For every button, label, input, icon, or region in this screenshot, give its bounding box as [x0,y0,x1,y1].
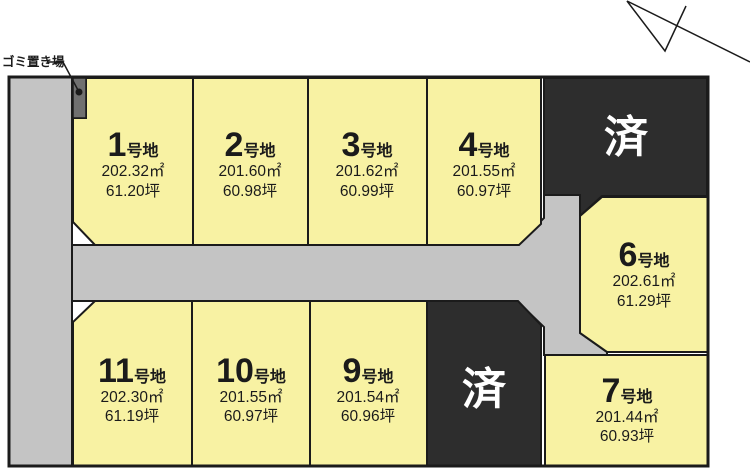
sold-plot-bottom-label: 済 [462,365,507,414]
left-road [9,77,72,466]
plot-3-area-m2: 201.62㎡ [336,162,399,180]
sold-plot-top: 済 [544,78,707,216]
plot-3-area-tsubo: 60.99坪 [340,182,394,200]
plot-4-area-tsubo: 60.97坪 [457,182,511,200]
plot-7: 7号地 201.44㎡ 60.93坪 [545,355,708,466]
plot-7-area-m2: 201.44㎡ [596,408,659,426]
plot-9-area-tsubo: 60.96坪 [341,407,395,425]
plot-2: 2号地 201.60㎡ 60.98坪 [193,78,308,245]
road-direction-lines-icon [627,1,750,62]
plot-4-shape [427,78,541,245]
plot-2-area-m2: 201.60㎡ [219,162,282,180]
plot-11-area-m2: 202.30㎡ [101,388,164,406]
plot-1-shape [73,78,193,245]
plot-4-area-m2: 201.55㎡ [453,162,516,180]
plot-6-area-m2: 202.61㎡ [613,272,676,290]
plot-9-area-m2: 201.54㎡ [337,388,400,406]
plot-10-area-tsubo: 60.97坪 [224,407,278,425]
plot-11: 11号地 202.30㎡ 61.19坪 [73,301,192,466]
plot-4: 4号地 201.55㎡ 60.97坪 [427,78,541,245]
plot-1-area-m2: 202.32㎡ [102,162,165,180]
plot-9: 9号地 201.54㎡ 60.96坪 [310,301,427,466]
sold-plot-bottom: 済 [427,301,541,466]
plot-3-shape [308,78,427,245]
plot-10-area-m2: 201.55㎡ [220,388,283,406]
plot-1-area-tsubo: 61.20坪 [106,182,160,200]
site-plan-svg: 1号地 202.32㎡ 61.20坪 2号地 201.60㎡ 60.98坪 3号… [0,0,750,473]
plot-7-area-tsubo: 60.93坪 [600,427,654,445]
plot-6-area-tsubo: 61.29坪 [617,292,671,310]
plot-11-area-tsubo: 61.19坪 [105,407,159,425]
plot-2-area-tsubo: 60.98坪 [223,182,277,200]
lot-layout-map: 1号地 202.32㎡ 61.20坪 2号地 201.60㎡ 60.98坪 3号… [0,0,750,473]
sold-plot-top-label: 済 [604,113,649,162]
plot-3: 3号地 201.62㎡ 60.99坪 [308,78,427,245]
plot-1: 1号地 202.32㎡ 61.20坪 [73,78,193,245]
plot-6: 6号地 202.61㎡ 61.29坪 [580,197,708,352]
plot-10: 10号地 201.55㎡ 60.97坪 [192,301,310,466]
plot-2-shape [193,78,308,245]
garbage-station-label: ゴミ置き場 [2,54,65,69]
